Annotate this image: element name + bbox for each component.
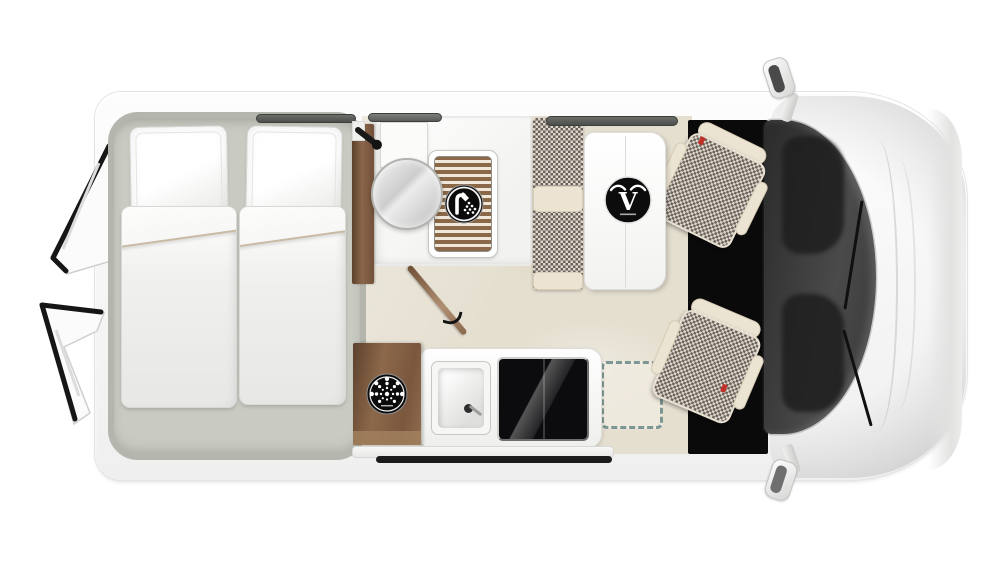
mirror-lens	[767, 64, 786, 94]
brand-logo-letter: V	[618, 187, 638, 216]
two-burner-hob	[497, 357, 589, 441]
kitchen-sink	[431, 361, 491, 435]
campervan-floorplan: V	[0, 0, 1000, 563]
dinette-bench	[533, 118, 583, 290]
sliding-door-rail	[376, 456, 612, 463]
rear-window	[256, 114, 356, 123]
mirror-lens	[769, 464, 788, 494]
dinette-window	[546, 116, 678, 126]
bench-front-trim	[533, 272, 583, 290]
bathroom-window	[368, 113, 442, 122]
duvet-fold	[121, 206, 237, 248]
sink-bowl	[438, 368, 484, 428]
brand-logo: V	[603, 175, 653, 225]
shower-icon	[444, 184, 484, 224]
kitchen-counter	[420, 348, 602, 448]
dashboard-silhouette-top	[782, 136, 844, 254]
dashboard-silhouette-bottom	[782, 294, 844, 412]
duvet-right	[239, 206, 346, 405]
hob-lid-seam	[543, 359, 545, 439]
wardrobe-partition	[352, 124, 374, 284]
fridge-vent-icon	[365, 372, 409, 416]
duvet-fold	[239, 206, 346, 247]
bench-armrest	[533, 186, 583, 212]
washbasin	[371, 158, 443, 230]
duvet-left	[121, 206, 237, 408]
